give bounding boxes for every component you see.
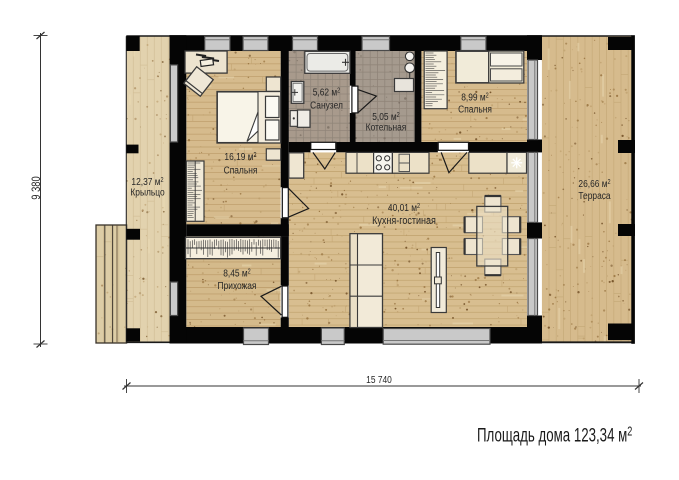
svg-text:Спальня: Спальня — [458, 104, 492, 116]
svg-text:Площадь дома 123,34 м2: Площадь дома 123,34 м2 — [477, 425, 632, 446]
svg-text:15 740: 15 740 — [366, 374, 392, 386]
svg-text:Котельная: Котельная — [366, 122, 407, 134]
svg-text:8,45 м2: 8,45 м2 — [223, 268, 251, 280]
svg-text:8,99 м2: 8,99 м2 — [461, 92, 489, 104]
svg-text:Кухня-гостиная: Кухня-гостиная — [372, 215, 436, 227]
svg-text:Санузел: Санузел — [310, 100, 343, 112]
svg-text:Крыльцо: Крыльцо — [130, 187, 164, 199]
svg-text:Терраса: Терраса — [578, 190, 611, 202]
svg-text:5,62 м2: 5,62 м2 — [313, 87, 341, 99]
svg-text:40,01 м2: 40,01 м2 — [388, 202, 421, 214]
svg-text:Спальня: Спальня — [224, 165, 258, 177]
svg-text:26,66 м2: 26,66 м2 — [578, 178, 611, 190]
svg-text:Прихожая: Прихожая — [218, 280, 257, 292]
svg-text:9 380: 9 380 — [30, 176, 43, 199]
svg-text:16,19 м2: 16,19 м2 — [224, 151, 257, 163]
